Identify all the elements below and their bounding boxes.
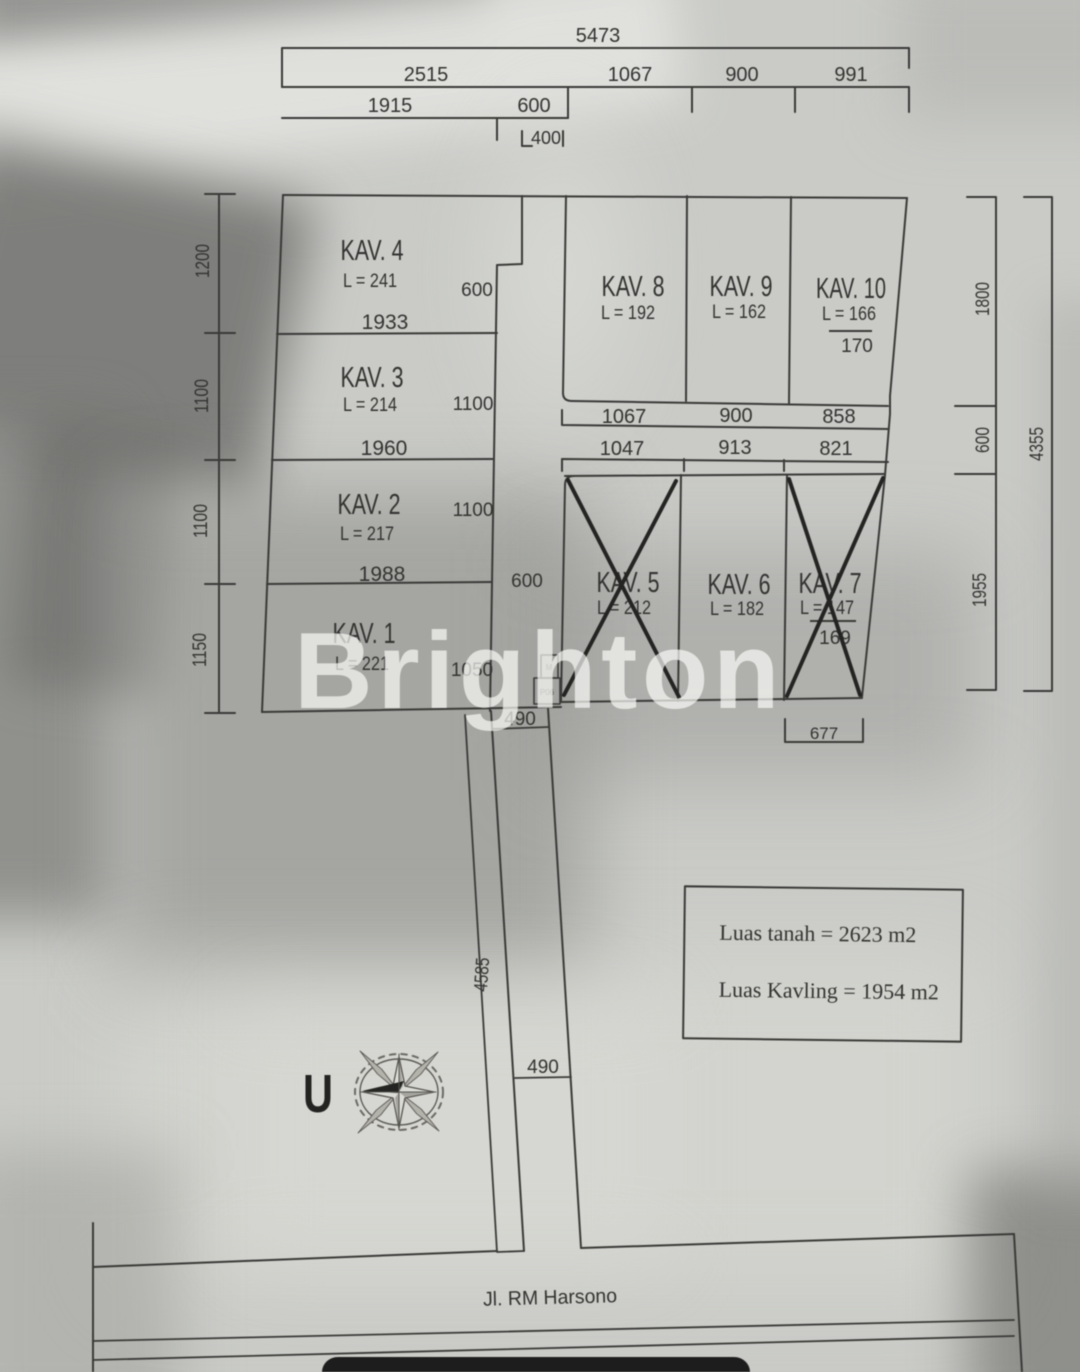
svg-text:KAV. 9: KAV. 9 [710,271,773,303]
svg-text:900: 900 [719,405,752,427]
svg-text:600: 600 [461,280,493,301]
svg-text:1933: 1933 [362,311,409,334]
svg-text:4585: 4585 [471,957,494,992]
svg-text:L = 162: L = 162 [712,302,766,323]
svg-text:900: 900 [725,64,758,86]
svg-text:KAV. 6: KAV. 6 [708,569,771,601]
svg-text:Luas tanah = 2623 m2: Luas tanah = 2623 m2 [719,920,916,947]
svg-text:1915: 1915 [368,95,413,117]
svg-text:1200: 1200 [193,244,214,278]
svg-text:600: 600 [517,95,550,117]
svg-text:1800: 1800 [973,282,994,316]
svg-text:Jl. RM Harsono: Jl. RM Harsono [483,1285,618,1311]
svg-text:2515: 2515 [404,64,449,86]
svg-text:600: 600 [511,571,543,592]
svg-text:L = 192: L = 192 [601,303,655,324]
svg-text:Luas Kavling = 1954 m2: Luas Kavling = 1954 m2 [719,977,939,1005]
svg-text:1067: 1067 [608,64,653,86]
svg-text:5473: 5473 [576,25,621,47]
svg-text:L = 241: L = 241 [343,271,397,292]
svg-text:1047: 1047 [600,438,645,460]
svg-text:170: 170 [841,336,873,357]
svg-text:L = 166: L = 166 [822,304,876,325]
svg-text:858: 858 [822,406,855,428]
svg-text:1100: 1100 [453,500,494,521]
svg-text:1955: 1955 [970,573,991,607]
svg-text:1100: 1100 [192,379,213,413]
svg-text:KAV. 2: KAV. 2 [338,489,401,521]
svg-text:1150: 1150 [190,633,211,667]
svg-text:490: 490 [527,1057,559,1078]
svg-text:KAV. 10: KAV. 10 [816,273,886,305]
svg-text:991: 991 [834,64,867,86]
svg-text:1100: 1100 [191,504,212,538]
svg-text:1067: 1067 [602,406,647,428]
svg-text:169: 169 [819,628,851,649]
svg-text:L = 214: L = 214 [343,395,397,416]
svg-text:677: 677 [810,724,838,743]
svg-text:U: U [303,1064,333,1124]
svg-text:913: 913 [718,437,751,459]
svg-text:1988: 1988 [359,563,406,586]
svg-text:L = 217: L = 217 [340,524,394,545]
svg-text:KAV. 3: KAV. 3 [341,362,404,394]
svg-text:KAV. 8: KAV. 8 [602,271,665,303]
svg-text:Brighton: Brighton [294,610,784,732]
svg-text:4355: 4355 [1027,427,1048,461]
svg-text:KAV. 4: KAV. 4 [341,235,404,267]
svg-text:1960: 1960 [361,437,408,460]
svg-text:600: 600 [973,427,994,453]
svg-text:821: 821 [819,438,852,460]
svg-text:1100: 1100 [453,394,494,415]
svg-text:400: 400 [531,128,561,148]
